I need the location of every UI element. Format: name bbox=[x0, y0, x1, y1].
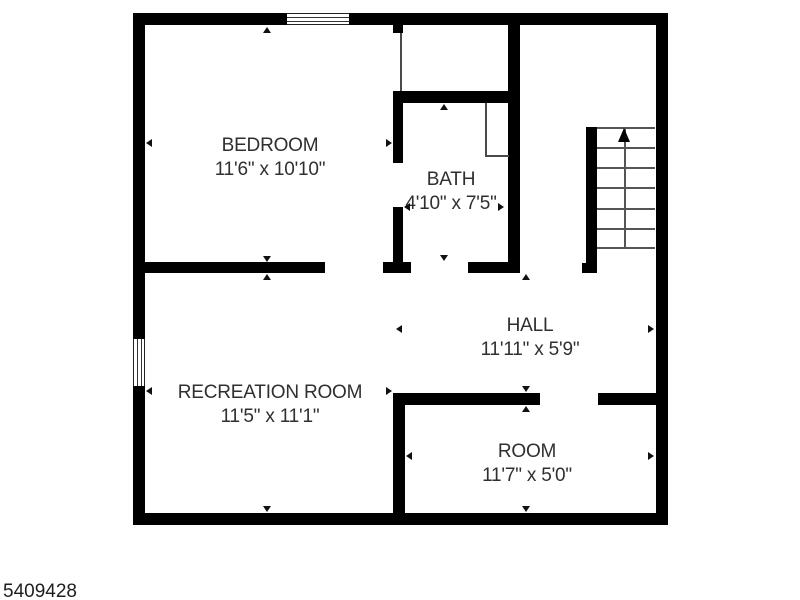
room-name: ROOM bbox=[377, 440, 677, 464]
staircase bbox=[597, 127, 655, 249]
window-end-cap bbox=[133, 335, 145, 339]
dim-arrow-room-left bbox=[406, 452, 412, 460]
dim-arrow-recreation-top bbox=[263, 274, 271, 280]
wall-bath-bottom-foot bbox=[468, 262, 520, 273]
recreation-room-label: RECREATION ROOM 11'5" x 11'1" bbox=[120, 381, 420, 429]
dim-arrow-bath-bottom bbox=[440, 255, 448, 261]
wall-room-top-right bbox=[598, 393, 656, 405]
window-top bbox=[283, 13, 353, 25]
dim-arrow-room-top bbox=[522, 406, 530, 412]
wall-bedroom-rec-divider bbox=[145, 262, 325, 273]
dim-arrow-recreation-left bbox=[146, 387, 152, 395]
dim-arrow-recreation-bottom bbox=[263, 506, 271, 512]
wall-outer-top bbox=[133, 13, 668, 25]
opening-header-line bbox=[400, 33, 402, 91]
dim-arrow-hall-top bbox=[522, 274, 530, 280]
shower-outline-vertical bbox=[485, 103, 487, 157]
room-label: ROOM 11'7" x 5'0" bbox=[377, 440, 677, 488]
recreation-room-dimensions: 11'5" x 11'1" bbox=[120, 405, 420, 429]
dim-arrow-hall-right bbox=[648, 325, 654, 333]
dim-arrow-room-bottom bbox=[522, 506, 530, 512]
room-dimensions: 11'7" x 5'0" bbox=[377, 464, 677, 488]
stair-direction-line bbox=[624, 127, 626, 249]
dim-arrow-bath-right bbox=[498, 203, 504, 211]
dim-arrow-hall-bottom bbox=[522, 386, 530, 392]
dim-arrow-bedroom-top bbox=[263, 27, 271, 33]
dim-arrow-bedroom-left bbox=[146, 139, 152, 147]
bedroom-name: BEDROOM bbox=[120, 134, 420, 158]
window-end-cap bbox=[349, 13, 353, 25]
stair-tread bbox=[597, 187, 655, 189]
dim-arrow-bedroom-right bbox=[386, 139, 392, 147]
dim-arrow-room-right bbox=[648, 452, 654, 460]
stair-tread bbox=[597, 208, 655, 210]
listing-id: 5409428 bbox=[3, 581, 77, 600]
stairs-up-arrow bbox=[618, 128, 630, 142]
wall-bedroom-right-foot bbox=[383, 262, 411, 273]
stair-tread bbox=[597, 167, 655, 169]
wall-bath-top bbox=[393, 91, 520, 103]
dim-arrow-bath-left bbox=[404, 203, 410, 211]
dim-arrow-recreation-right bbox=[386, 387, 392, 395]
window-pane-line bbox=[284, 17, 352, 18]
bath-dimensions: 4'10" x 7'5" bbox=[301, 192, 601, 216]
stair-tread bbox=[597, 147, 655, 149]
bath-label: BATH 4'10" x 7'5" bbox=[301, 168, 601, 216]
stair-tread bbox=[597, 247, 655, 249]
wall-bedroom-right-stub bbox=[393, 25, 403, 33]
wall-bath-stairs-divider bbox=[508, 25, 520, 273]
dim-arrow-bath-top bbox=[440, 104, 448, 110]
bath-name: BATH bbox=[301, 168, 601, 192]
recreation-room-name: RECREATION ROOM bbox=[120, 381, 420, 405]
stair-tread bbox=[597, 228, 655, 230]
window-end-cap bbox=[283, 13, 287, 25]
dim-arrow-bedroom-bottom bbox=[263, 256, 271, 262]
shower-outline-horizontal bbox=[485, 155, 509, 157]
hall-label: HALL 11'11" x 5'9" bbox=[380, 314, 680, 362]
wall-outer-bottom bbox=[133, 513, 668, 525]
window-pane-line bbox=[284, 21, 352, 22]
hall-dimensions: 11'11" x 5'9" bbox=[380, 338, 680, 362]
floor-plan: BEDROOM 11'6" x 10'10" BATH 4'10" x 7'5"… bbox=[0, 0, 800, 600]
dim-arrow-hall-left bbox=[396, 325, 402, 333]
wall-outer-left bbox=[133, 13, 145, 525]
wall-stairs-left-foot bbox=[582, 263, 597, 273]
hall-name: HALL bbox=[380, 314, 680, 338]
